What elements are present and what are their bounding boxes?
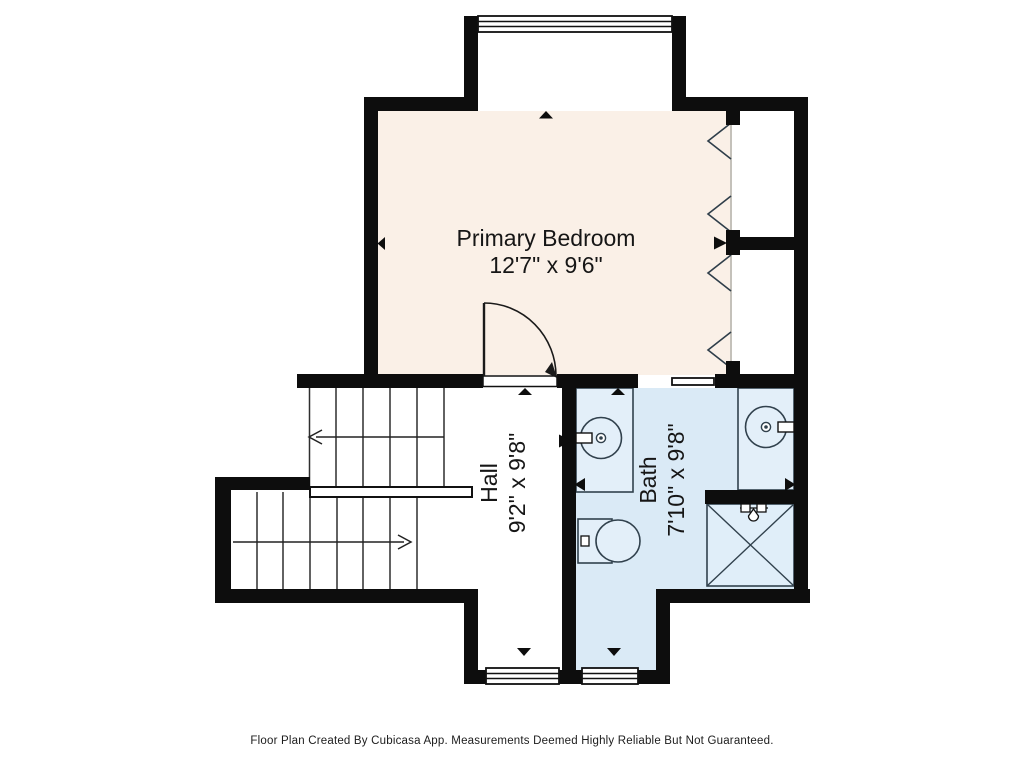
window-icon: [582, 668, 638, 684]
stair-direction-arrow-down: [233, 535, 411, 549]
primary-bedroom-label: Primary Bedroom: [457, 225, 636, 251]
toilet-icon: [578, 519, 640, 563]
stair-railing: [310, 487, 472, 497]
floor-plan-page: Primary Bedroom 12'7" x 9'6" Hall 9'2" x…: [0, 0, 1024, 768]
bath-dimensions: 7'10" x 9'8": [663, 423, 689, 536]
faucet-icon: [778, 422, 794, 432]
faucet-icon: [576, 433, 592, 443]
hall-dimensions: 9'2" x 9'8": [504, 433, 530, 534]
window-icon: [486, 668, 559, 684]
footer-disclaimer: Floor Plan Created By Cubicasa App. Meas…: [0, 735, 1024, 747]
sliding-door-icon: [672, 378, 714, 385]
bath-label: Bath: [635, 456, 661, 503]
stair-direction-arrow-up: [309, 430, 444, 444]
primary-bedroom-dimensions: 12'7" x 9'6": [489, 252, 602, 278]
window-icon: [478, 16, 672, 32]
floor-plan-drawing: Primary Bedroom 12'7" x 9'6" Hall 9'2" x…: [0, 0, 1024, 768]
hall-label: Hall: [476, 463, 502, 503]
